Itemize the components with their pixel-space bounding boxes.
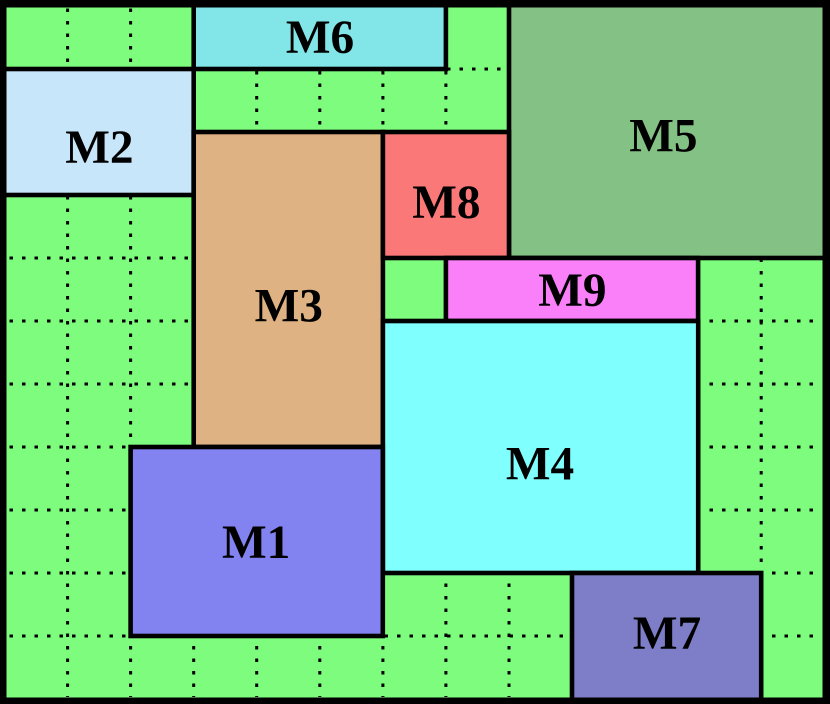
svg-text:M2: M2 <box>65 122 133 174</box>
svg-text:M3: M3 <box>255 280 323 332</box>
svg-text:M9: M9 <box>538 265 606 317</box>
svg-text:M8: M8 <box>412 177 480 229</box>
svg-text:M1: M1 <box>222 517 290 569</box>
svg-text:M4: M4 <box>506 438 574 490</box>
svg-text:M7: M7 <box>633 608 701 660</box>
svg-text:M6: M6 <box>286 12 354 64</box>
svg-text:M5: M5 <box>629 110 697 162</box>
